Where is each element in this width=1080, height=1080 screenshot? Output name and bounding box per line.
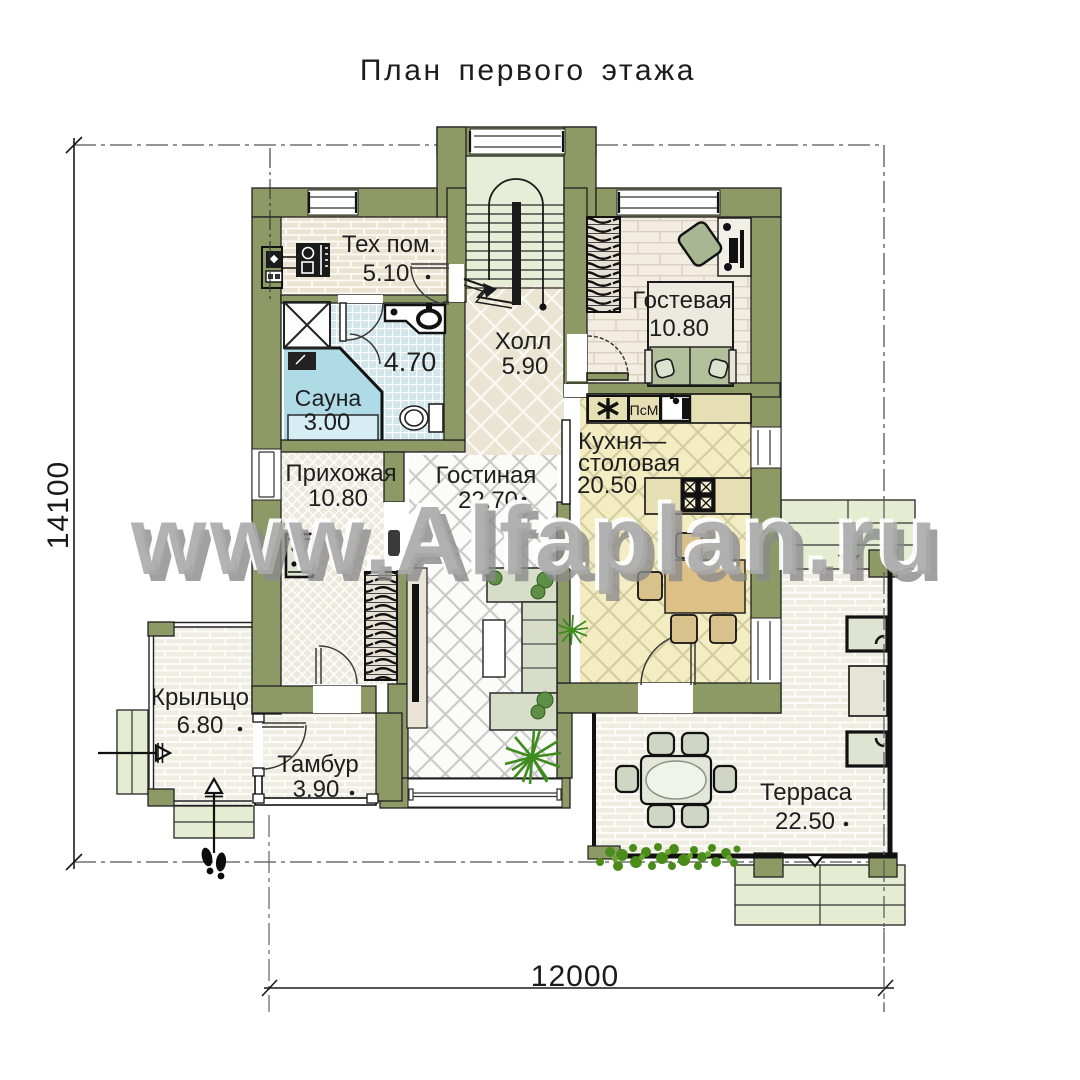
svg-text:4.70: 4.70 [384, 347, 437, 377]
svg-text:План первого этажа: План первого этажа [360, 54, 696, 87]
svg-text:Крыльцо: Крыльцо [151, 684, 249, 711]
svg-text:Терраса: Терраса [760, 779, 853, 806]
svg-text:6.80: 6.80 [177, 712, 224, 739]
svg-text:3.00: 3.00 [304, 409, 351, 436]
svg-text:12000: 12000 [531, 960, 619, 993]
svg-text:Сауна: Сауна [295, 385, 362, 411]
svg-text:14100: 14100 [42, 461, 75, 549]
svg-text:Тех пом.: Тех пом. [342, 231, 436, 258]
svg-text:Тамбур: Тамбур [277, 751, 358, 778]
svg-text:5.90: 5.90 [502, 353, 549, 380]
svg-text:22.50: 22.50 [775, 808, 835, 835]
svg-text:10.80: 10.80 [649, 315, 709, 342]
svg-text:Гостевая: Гостевая [632, 287, 732, 314]
svg-text:3.90: 3.90 [293, 776, 340, 803]
svg-text:5.10: 5.10 [363, 260, 410, 287]
svg-text:ПсМ: ПсМ [630, 402, 659, 418]
svg-text:Холл: Холл [495, 328, 552, 355]
